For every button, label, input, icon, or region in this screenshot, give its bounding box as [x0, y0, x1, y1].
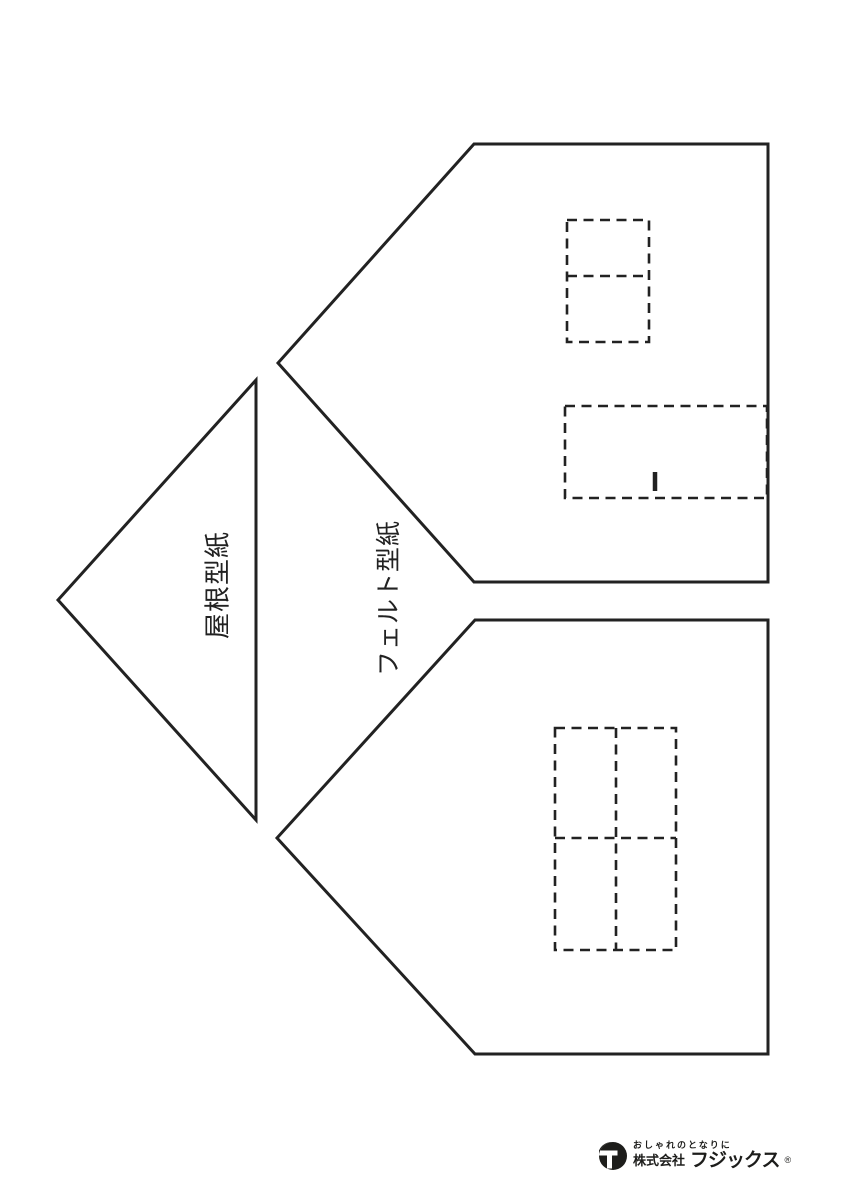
- roof-pattern-label: 屋根型紙: [198, 531, 235, 639]
- fujix-tagline: おしゃれのとなりに: [633, 1140, 791, 1150]
- fujix-logo: おしゃれのとなりに 株式会社 フジックス ®: [598, 1140, 791, 1171]
- fujix-company-name: 株式会社: [633, 1151, 685, 1171]
- felt-pattern-top-outline: [278, 144, 768, 582]
- registered-trademark-icon: ®: [784, 1150, 791, 1171]
- fujix-brand-row: 株式会社 フジックス ®: [633, 1150, 791, 1171]
- fujix-logo-icon: [598, 1141, 628, 1171]
- chimney-guide-dashed-rect: [567, 220, 649, 342]
- door-guide-dashed-rect: [565, 406, 767, 498]
- fujix-brand-name: フジックス: [690, 1151, 779, 1171]
- pattern-sheet-page: 屋根型紙 フェルト型紙 おしゃれのとなりに 株式会社 フジックス ®: [0, 0, 848, 1200]
- fujix-logo-text: おしゃれのとなりに 株式会社 フジックス ®: [633, 1140, 791, 1171]
- felt-pattern-bottom-outline: [277, 620, 768, 1054]
- pattern-shapes-canvas: [0, 0, 848, 1200]
- felt-pattern-label: フェルト型紙: [369, 520, 405, 676]
